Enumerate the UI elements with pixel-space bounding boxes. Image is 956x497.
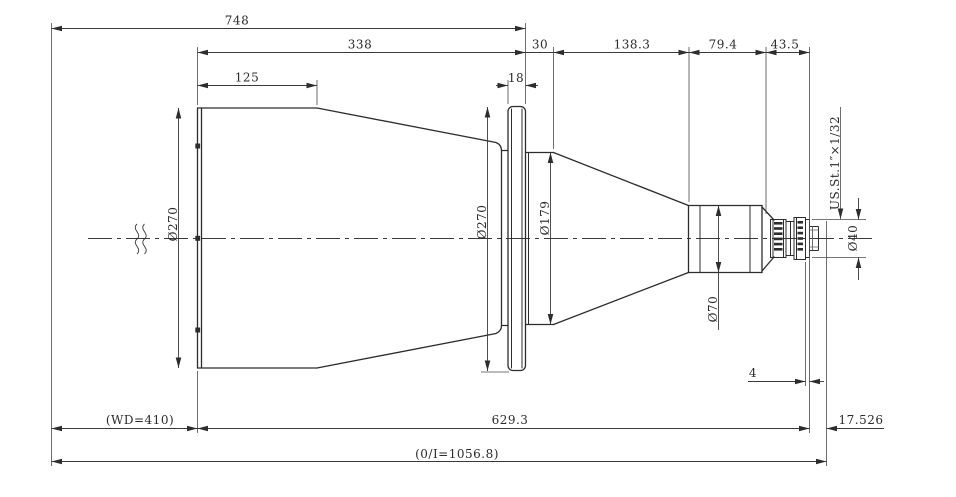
dim-mid-barrel-label: 79.4 bbox=[709, 38, 738, 52]
dim-dia-flange-label: Ø270 bbox=[475, 205, 489, 240]
dimension-labels: 748 338 30 138.3 79.4 43.5 125 18 4 (WD=… bbox=[106, 14, 884, 462]
dim-mount-section-label: 43.5 bbox=[771, 38, 800, 52]
break-squiggle-icon bbox=[143, 224, 146, 254]
dim-taper-section-label: 138.3 bbox=[614, 38, 651, 52]
front-face-tick bbox=[195, 328, 200, 333]
extension-lines bbox=[52, 23, 867, 466]
dim-dia-mid-label: Ø179 bbox=[538, 201, 552, 236]
dim-overall-front-label: 748 bbox=[225, 14, 249, 28]
dim-rear-body-label: 338 bbox=[348, 38, 372, 52]
lens-technical-drawing: 748 338 30 138.3 79.4 43.5 125 18 4 (WD=… bbox=[0, 0, 956, 497]
thread-spec-label: US.St.1″×1/32 bbox=[828, 116, 842, 210]
dimension-arrowheads bbox=[52, 26, 862, 465]
dim-body-to-flange-label: 629.3 bbox=[492, 413, 529, 427]
dim-cmount-flange-label: 4 bbox=[749, 366, 757, 380]
break-squiggle-icon bbox=[135, 224, 138, 254]
dim-working-distance-label: (WD=410) bbox=[106, 413, 174, 427]
dim-object-image-label: (0/I=1056.8) bbox=[415, 447, 499, 461]
dim-flange-focal-label: 17.526 bbox=[839, 413, 884, 427]
dim-dia-mount-label: Ø40 bbox=[846, 225, 860, 252]
front-face-tick bbox=[195, 144, 200, 149]
dim-front-barrel-label: 125 bbox=[235, 71, 259, 85]
front-face-tick bbox=[195, 236, 200, 241]
dim-flange-to-taper-label: 30 bbox=[532, 38, 548, 52]
dim-dia-front-label: Ø270 bbox=[166, 207, 180, 242]
drawing-svg: 748 338 30 138.3 79.4 43.5 125 18 4 (WD=… bbox=[0, 0, 956, 497]
dim-flange-thickness-label: 18 bbox=[508, 71, 524, 85]
dim-dia-rear-label: Ø70 bbox=[706, 296, 720, 323]
dimension-lines bbox=[52, 29, 885, 462]
